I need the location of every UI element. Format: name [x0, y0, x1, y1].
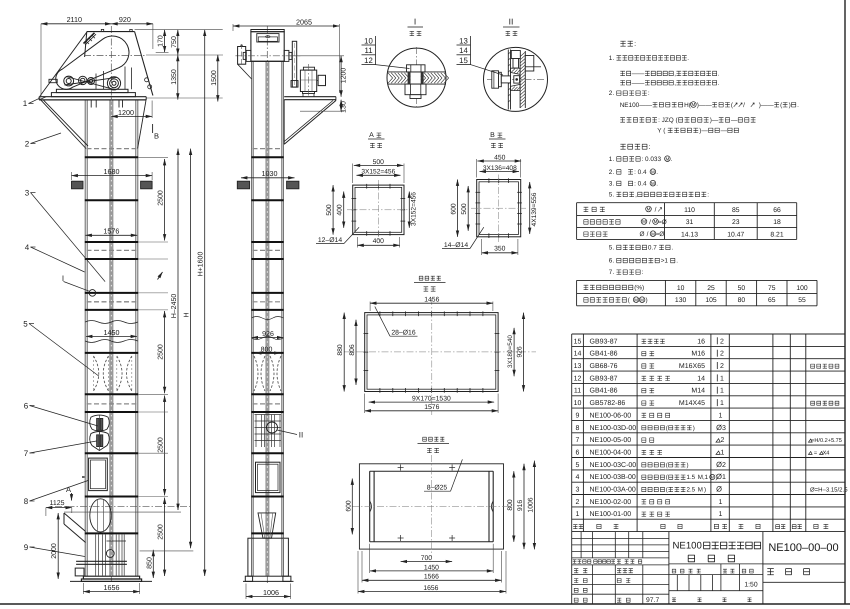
svg-text:7: 7 — [576, 437, 580, 444]
svg-text:15: 15 — [574, 338, 582, 345]
svg-text:A: A — [369, 132, 374, 139]
svg-text:130: 130 — [675, 297, 687, 304]
svg-text:1: 1 — [576, 511, 580, 518]
svg-text:Ø: Ø — [640, 231, 645, 238]
svg-text:800: 800 — [261, 346, 273, 353]
svg-text:75: 75 — [768, 285, 776, 292]
svg-text:450: 450 — [494, 154, 506, 161]
svg-text:M: M — [640, 297, 644, 302]
svg-text:): ) — [789, 102, 791, 109]
svg-text:926: 926 — [262, 331, 274, 338]
svg-text:—: — — [731, 117, 738, 124]
svg-text:GB93-87: GB93-87 — [590, 375, 618, 382]
svg-text:7: 7 — [24, 449, 29, 458]
svg-text:M,1: M,1 — [698, 474, 709, 481]
svg-text:10: 10 — [364, 36, 373, 45]
svg-text:1:50: 1:50 — [744, 581, 757, 588]
svg-text:80: 80 — [738, 297, 746, 304]
svg-text:NE100-02-00: NE100-02-00 — [590, 499, 632, 506]
svg-text:1: 1 — [719, 511, 723, 518]
svg-text:600: 600 — [451, 203, 458, 215]
svg-text:1: 1 — [721, 449, 725, 456]
svg-text:X4: X4 — [823, 450, 830, 456]
svg-text:M: M — [698, 487, 703, 494]
svg-text:): ) — [704, 487, 706, 494]
svg-text:M: M — [651, 181, 655, 186]
svg-text:2065: 2065 — [296, 17, 312, 26]
svg-text:1: 1 — [722, 474, 726, 481]
svg-text:.: . — [687, 55, 689, 62]
svg-text:1350: 1350 — [171, 69, 178, 85]
svg-text:16: 16 — [697, 338, 705, 345]
svg-text:1576: 1576 — [103, 227, 119, 236]
svg-text:31: 31 — [686, 219, 694, 226]
svg-text:2500: 2500 — [158, 437, 165, 453]
svg-text:=H/0.2+5.75: =H/0.2+5.75 — [811, 437, 842, 444]
svg-text:M: M — [665, 156, 669, 161]
svg-text:H: H — [184, 312, 191, 317]
svg-text:1: 1 — [720, 375, 724, 382]
svg-text:1.: 1. — [609, 55, 615, 62]
svg-text:9X170=1530: 9X170=1530 — [412, 396, 451, 403]
svg-text:M: M — [711, 475, 715, 480]
svg-text:1200: 1200 — [118, 108, 134, 117]
svg-text:2500: 2500 — [158, 344, 165, 360]
svg-text:11: 11 — [574, 388, 581, 395]
svg-text:2: 2 — [576, 499, 580, 506]
svg-text:4: 4 — [25, 243, 30, 252]
svg-text:3X152=456: 3X152=456 — [361, 169, 395, 176]
svg-text:800: 800 — [507, 499, 514, 511]
svg-text:130: 130 — [341, 101, 348, 113]
svg-text:1125: 1125 — [49, 500, 64, 507]
svg-text:GB41-86: GB41-86 — [590, 351, 618, 358]
svg-text:3: 3 — [25, 189, 30, 198]
svg-text:4: 4 — [576, 474, 580, 481]
svg-text:.: . — [671, 156, 673, 163]
svg-text:14: 14 — [574, 351, 582, 358]
svg-text:M: M — [651, 231, 655, 236]
svg-text:II: II — [299, 431, 303, 440]
svg-text:2: 2 — [721, 437, 725, 444]
svg-text:100: 100 — [796, 285, 808, 292]
svg-text:2: 2 — [25, 140, 30, 149]
svg-text:400: 400 — [373, 238, 385, 245]
svg-text:>1: >1 — [661, 258, 669, 265]
svg-text:Ø: Ø — [716, 485, 722, 494]
svg-text:1: 1 — [720, 388, 724, 395]
svg-text:9: 9 — [576, 412, 580, 419]
svg-text:M14: M14 — [691, 388, 705, 395]
svg-text:28–Ø16: 28–Ø16 — [391, 330, 415, 337]
svg-text:850: 850 — [146, 557, 153, 569]
svg-text:12–Ø14: 12–Ø14 — [318, 237, 342, 244]
svg-text:.: . — [676, 258, 678, 265]
svg-text:2110: 2110 — [67, 15, 82, 24]
svg-text:25: 25 — [707, 285, 715, 292]
svg-text:10: 10 — [574, 400, 582, 407]
svg-text:NE100-03C-00: NE100-03C-00 — [590, 462, 637, 469]
svg-text:NE100: NE100 — [673, 541, 702, 552]
svg-text:): ) — [646, 297, 648, 304]
svg-text:3.: 3. — [609, 181, 615, 188]
svg-text:NE100-04-00: NE100-04-00 — [590, 449, 632, 456]
svg-text:700: 700 — [421, 555, 433, 562]
svg-text:5.: 5. — [609, 245, 615, 252]
svg-text:2: 2 — [722, 462, 726, 469]
svg-text:66: 66 — [773, 207, 781, 214]
svg-text:GB68-76: GB68-76 — [590, 363, 618, 370]
svg-text:H–2450: H–2450 — [171, 294, 178, 319]
svg-text:H+1600: H+1600 — [198, 252, 205, 277]
svg-text:85: 85 — [732, 207, 740, 214]
svg-text:170: 170 — [158, 35, 165, 47]
svg-text:)—: )— — [699, 127, 708, 134]
svg-text:NE100-01-00: NE100-01-00 — [590, 511, 632, 518]
svg-text:NE100-03A-00: NE100-03A-00 — [590, 487, 636, 494]
svg-text:GB41-86: GB41-86 — [590, 388, 618, 395]
svg-text:2500: 2500 — [158, 190, 165, 206]
svg-text:: JZQ (: : JZQ ( — [658, 117, 678, 124]
svg-text:1: 1 — [719, 499, 723, 506]
svg-text:1030: 1030 — [262, 169, 278, 178]
svg-text:I: I — [62, 274, 64, 283]
svg-text:.: . — [718, 80, 720, 87]
svg-text:II: II — [509, 17, 514, 27]
svg-text:8.21: 8.21 — [770, 231, 783, 238]
svg-text:M16X65: M16X65 — [679, 363, 705, 370]
svg-text:1656: 1656 — [104, 583, 120, 592]
svg-text:10: 10 — [677, 285, 685, 292]
svg-text:65: 65 — [768, 297, 776, 304]
svg-text:1.5: 1.5 — [687, 474, 696, 481]
svg-text:8: 8 — [576, 425, 580, 432]
svg-text:8: 8 — [24, 497, 29, 506]
svg-text:500: 500 — [461, 203, 468, 215]
svg-text:GB5782-86: GB5782-86 — [590, 400, 626, 407]
svg-text:,: , — [635, 192, 637, 199]
svg-text:≈Ø: ≈Ø — [658, 219, 667, 226]
svg-text:3X180=540: 3X180=540 — [507, 335, 514, 368]
svg-text::: : — [649, 142, 651, 151]
svg-text:6.: 6. — [609, 258, 615, 265]
svg-text::: : — [634, 39, 636, 48]
svg-text:10.47: 10.47 — [727, 231, 744, 238]
svg-text:: 0.4: : 0.4 — [634, 169, 647, 176]
svg-text:500: 500 — [326, 204, 333, 216]
svg-text:400: 400 — [337, 204, 344, 216]
svg-text:M: M — [654, 219, 658, 224]
svg-text:)——: )—— — [759, 102, 775, 109]
svg-text:M16: M16 — [691, 351, 705, 358]
svg-text:12: 12 — [574, 375, 582, 382]
svg-text:1: 1 — [719, 412, 723, 419]
svg-text:2: 2 — [720, 351, 724, 358]
svg-text:350: 350 — [494, 246, 506, 253]
svg-text:M: M — [691, 102, 695, 107]
svg-text:NE100-06-00: NE100-06-00 — [590, 412, 632, 419]
svg-text:916: 916 — [517, 500, 524, 512]
svg-text:1680: 1680 — [104, 167, 120, 176]
svg-text:0.7: 0.7 — [648, 245, 657, 252]
svg-text:926: 926 — [517, 346, 524, 358]
svg-text:1006: 1006 — [263, 588, 279, 597]
svg-text:/: / — [655, 207, 657, 214]
svg-text:—: — — [721, 127, 728, 134]
svg-text:3X152=456: 3X152=456 — [411, 192, 418, 226]
svg-text:): ) — [687, 462, 689, 469]
svg-text:11: 11 — [364, 46, 372, 55]
svg-text:,: , — [674, 71, 676, 78]
svg-text:3: 3 — [722, 425, 726, 432]
svg-text:880: 880 — [337, 344, 344, 356]
svg-text:I: I — [414, 17, 416, 27]
svg-text:/: / — [743, 102, 745, 109]
svg-text:2.5: 2.5 — [687, 487, 696, 494]
svg-text:55: 55 — [798, 297, 806, 304]
svg-text:/: / — [647, 231, 649, 238]
svg-text:3X136=408: 3X136=408 — [483, 165, 517, 172]
svg-text:: 0.033: : 0.033 — [642, 156, 662, 163]
svg-text::: : — [648, 90, 650, 97]
svg-text:2: 2 — [720, 363, 724, 370]
svg-text:1200: 1200 — [341, 68, 348, 84]
svg-text:M14X45: M14X45 — [679, 400, 705, 407]
svg-text:6: 6 — [24, 402, 29, 411]
svg-text:)——: )—— — [697, 102, 713, 109]
svg-text:,: , — [674, 80, 676, 87]
svg-text:M: M — [651, 169, 655, 174]
svg-text:4X139=556: 4X139=556 — [531, 192, 538, 226]
svg-text:7.: 7. — [609, 269, 615, 276]
svg-text:12: 12 — [364, 56, 373, 65]
svg-text:500: 500 — [373, 159, 385, 166]
svg-text:8–Ø25: 8–Ø25 — [427, 485, 448, 492]
svg-text:97.7: 97.7 — [646, 597, 659, 604]
svg-text:1456: 1456 — [424, 297, 439, 304]
svg-text:M: M — [642, 219, 646, 224]
svg-text:2.: 2. — [609, 169, 615, 176]
svg-text:M: M — [634, 297, 638, 302]
svg-text:105: 105 — [705, 297, 717, 304]
svg-text:1450: 1450 — [424, 564, 439, 571]
svg-text:14.13: 14.13 — [681, 231, 698, 238]
svg-text:)—: )— — [710, 117, 719, 124]
svg-text:NE100-03D-00: NE100-03D-00 — [590, 425, 637, 432]
svg-text:B: B — [490, 132, 495, 139]
svg-text:Y (: Y ( — [657, 127, 666, 134]
svg-text:NE100–00–00: NE100–00–00 — [768, 542, 838, 554]
svg-text:9: 9 — [24, 543, 29, 552]
svg-text:(%): (%) — [634, 285, 644, 292]
svg-text:2500: 2500 — [158, 524, 165, 540]
svg-text:110: 110 — [684, 207, 695, 214]
svg-text:1566: 1566 — [424, 574, 439, 581]
svg-text:3: 3 — [576, 487, 580, 494]
svg-text:NE100-05-00: NE100-05-00 — [590, 437, 632, 444]
svg-text:920: 920 — [119, 15, 131, 24]
svg-text:806: 806 — [349, 344, 356, 356]
svg-text:750: 750 — [171, 36, 178, 48]
svg-text:1: 1 — [23, 99, 28, 108]
svg-text:NE100-03B-00: NE100-03B-00 — [590, 474, 636, 481]
svg-text::: : — [642, 269, 644, 276]
svg-text:50: 50 — [738, 285, 746, 292]
svg-text:.: . — [656, 181, 658, 188]
svg-text:13: 13 — [574, 363, 582, 370]
svg-text:Ø=H–3.15/2.5: Ø=H–3.15/2.5 — [810, 487, 848, 494]
svg-text:1656: 1656 — [423, 585, 438, 592]
svg-text:5.: 5. — [609, 192, 615, 199]
svg-text:1006: 1006 — [527, 497, 534, 512]
svg-text:=: = — [814, 450, 817, 456]
svg-text::: : — [707, 192, 709, 199]
svg-text:——: —— — [632, 71, 645, 78]
svg-text:.: . — [797, 102, 799, 109]
svg-text:18: 18 — [773, 219, 781, 226]
svg-text:.: . — [671, 245, 673, 252]
svg-text:2.: 2. — [609, 90, 615, 97]
svg-text:/: / — [649, 219, 651, 226]
svg-text:1576: 1576 — [424, 404, 439, 411]
svg-text:15: 15 — [459, 56, 468, 65]
svg-text:.: . — [656, 169, 658, 176]
svg-text:——: —— — [632, 80, 645, 87]
svg-text:: 0.4: : 0.4 — [634, 181, 647, 188]
svg-text:14: 14 — [459, 46, 468, 55]
svg-text:2: 2 — [720, 338, 724, 345]
svg-text:5: 5 — [576, 462, 580, 469]
svg-text:M: M — [647, 207, 651, 212]
svg-text:2000: 2000 — [51, 543, 58, 559]
svg-text:B: B — [154, 132, 159, 141]
svg-text:5: 5 — [23, 320, 28, 329]
svg-text:6: 6 — [576, 449, 580, 456]
svg-text:600: 600 — [345, 500, 352, 512]
svg-text:13: 13 — [459, 36, 468, 45]
svg-text:1500: 1500 — [211, 70, 218, 86]
svg-text:≈Ø: ≈Ø — [656, 231, 665, 238]
svg-text:.: . — [718, 71, 720, 78]
svg-text:1.: 1. — [609, 156, 615, 163]
svg-text:GB93-87: GB93-87 — [590, 338, 618, 345]
svg-text:NE100——: NE100—— — [620, 102, 653, 109]
svg-text:14–Ø14: 14–Ø14 — [444, 242, 468, 249]
svg-text:14: 14 — [697, 375, 705, 382]
svg-text:): ) — [693, 425, 695, 432]
svg-text:23: 23 — [732, 219, 740, 226]
svg-text:1: 1 — [720, 400, 724, 407]
svg-text:1450: 1450 — [104, 328, 120, 337]
